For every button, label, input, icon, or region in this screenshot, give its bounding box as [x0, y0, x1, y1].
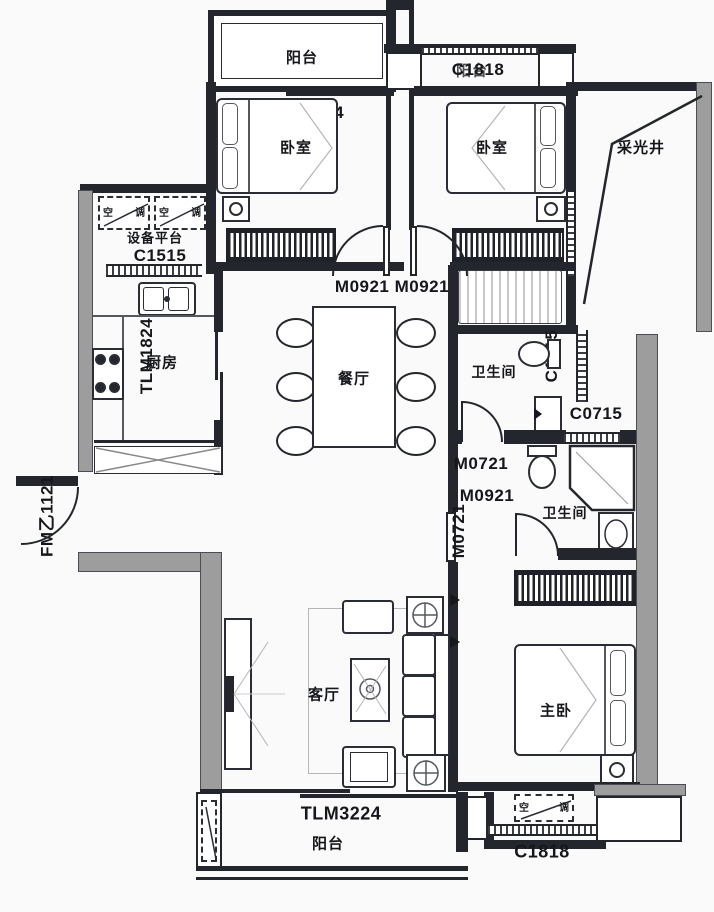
ac-unit-marker: 空 调: [154, 196, 206, 230]
tv: [225, 676, 234, 712]
dining-chair: [276, 372, 316, 402]
c0715-code: C0715: [570, 404, 623, 424]
wardrobe: [514, 570, 636, 606]
window-c1015: [576, 330, 588, 402]
window-c0715: [564, 432, 622, 444]
m0721-vert-code: M0721: [449, 486, 469, 576]
pillow: [610, 650, 626, 696]
nightstand-lamp: [609, 762, 625, 778]
burner: [109, 354, 120, 365]
c1818-bottom-code: C1818: [514, 842, 570, 863]
equipment-platform-label: 设备平台: [127, 228, 183, 247]
dining-chair: [396, 426, 436, 456]
bath1-label: 卫生间: [472, 362, 517, 382]
exterior-wall: [78, 190, 93, 472]
shower: [534, 396, 562, 434]
exterior-wall: [594, 784, 686, 796]
master-bedroom-label: 主卧: [540, 700, 572, 721]
tlm1824-kitchen-code: TLM1824: [137, 301, 157, 411]
pillow: [222, 103, 238, 145]
wall: [566, 82, 576, 192]
wall: [80, 184, 212, 193]
exterior-wall: [636, 334, 658, 792]
window-c1515: [106, 264, 202, 277]
nightstand-lamp: [229, 202, 243, 216]
wall: [414, 86, 578, 96]
bed-line: [248, 100, 250, 192]
sliding-door-panel: [214, 87, 326, 91]
bay-pier: [386, 52, 422, 90]
door-leaf: [383, 226, 390, 276]
bedroom-right-label: 卧室: [476, 137, 508, 158]
burner: [95, 354, 106, 365]
ac-unit-marker: [201, 800, 217, 862]
wall: [558, 548, 638, 560]
sink-basin: [168, 287, 189, 311]
balcony-bottom-label: 阳台: [312, 833, 344, 854]
wall: [504, 430, 566, 444]
c1015-code: C1015: [542, 316, 562, 396]
window-c1818: [488, 824, 596, 836]
ac-glyph: 调: [559, 804, 569, 814]
wall: [214, 270, 223, 332]
sliding-door-panel: [200, 789, 350, 793]
coffee-table: [350, 658, 390, 722]
ac-glyph: 空: [159, 209, 169, 219]
c1818-top-overlay: 阳台: [456, 60, 488, 81]
side-table: [406, 596, 444, 634]
side-table: [406, 754, 446, 792]
door-leaf: [410, 226, 417, 276]
wall: [576, 82, 706, 91]
sofa-cushion: [402, 634, 436, 676]
wardrobe: [452, 228, 564, 262]
bed-line: [604, 646, 606, 754]
ac-unit-marker: 空 调: [98, 196, 150, 230]
wall: [386, 8, 391, 230]
ac-unit-marker: 空 调: [514, 794, 574, 822]
tlm3224-code: TLM3224: [301, 804, 382, 825]
pillow: [222, 147, 238, 189]
ac-glyph: 调: [191, 209, 201, 219]
sofa-cushion: [402, 716, 436, 758]
sliding-door-panel: [300, 794, 458, 798]
fm1121-code: FM乙1121: [33, 456, 58, 576]
ac-glyph: 调: [135, 209, 145, 219]
dining-chair: [396, 318, 436, 348]
living-label: 客厅: [308, 684, 340, 705]
stool-inner: [350, 752, 388, 782]
sofa-back: [434, 634, 450, 756]
ac-diagonal: [203, 802, 219, 864]
wall: [448, 430, 462, 444]
nightstand-lamp: [544, 202, 558, 216]
sofa-cushion: [402, 675, 436, 717]
exterior-wall: [200, 552, 222, 792]
light-well-label: 采光井: [617, 137, 665, 158]
dining-chair: [276, 426, 316, 456]
sliding-door-panel: [286, 92, 394, 96]
wardrobe: [226, 228, 336, 262]
wall: [214, 262, 404, 271]
dining-label: 餐厅: [338, 368, 370, 389]
c1515-code: C1515: [134, 246, 187, 266]
pillow: [540, 148, 556, 188]
wall: [196, 877, 468, 880]
sliding-door-panel: [220, 372, 223, 420]
bay-window: [422, 46, 538, 55]
wall: [409, 8, 414, 230]
m0721-code: M0721: [454, 454, 508, 474]
balcony-top-label: 阳台: [286, 47, 318, 68]
floor-plan: 阳台 TLM1824 C1818 阳台 卧室 卧室 采光井 空 调: [0, 0, 714, 912]
pillow: [540, 106, 556, 146]
ac-glyph: 空: [103, 209, 113, 219]
burner: [109, 382, 120, 393]
bedroom-left-label: 卧室: [280, 137, 312, 158]
stool: [342, 600, 394, 634]
wall: [206, 82, 216, 274]
wall: [448, 265, 458, 512]
bath2-label: 卫生间: [543, 503, 588, 523]
burner: [95, 382, 106, 393]
m0921-pair-code: M0921 M0921: [335, 277, 449, 297]
sliding-door-panel: [215, 332, 218, 380]
balcony-pier: [466, 796, 488, 840]
pillow: [610, 700, 626, 746]
kitchen-bottom-line: [94, 440, 222, 443]
exterior-wall: [696, 82, 712, 332]
ac-platform: [596, 796, 682, 842]
dining-chair: [276, 318, 316, 348]
wall: [196, 866, 468, 871]
dining-chair: [396, 372, 436, 402]
bed-line: [534, 104, 536, 192]
entry-cabinet: [94, 446, 222, 474]
ac-glyph: 空: [519, 804, 529, 814]
